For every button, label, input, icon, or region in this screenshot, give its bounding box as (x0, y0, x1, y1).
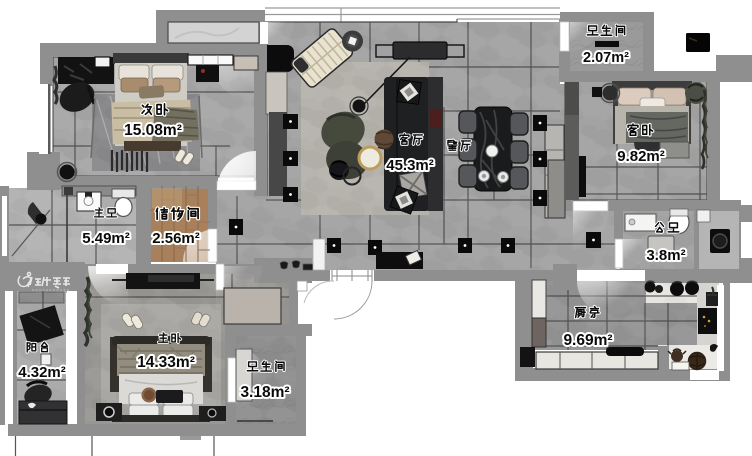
svg-text:9.82m²: 9.82m² (617, 148, 665, 165)
svg-text:14.33m²: 14.33m² (137, 354, 195, 371)
svg-text:4.32m²: 4.32m² (18, 364, 66, 381)
svg-text:15.08m²: 15.08m² (124, 122, 182, 139)
svg-text:9.69m²: 9.69m² (563, 332, 612, 349)
svg-text:45.3m²: 45.3m² (386, 157, 434, 174)
svg-text:2.56m²: 2.56m² (152, 230, 200, 247)
svg-text:5.49m²: 5.49m² (82, 230, 130, 247)
svg-text:3.8m²: 3.8m² (646, 247, 685, 264)
svg-text:2.07m²: 2.07m² (583, 50, 629, 66)
svg-text:3.18m²: 3.18m² (240, 384, 289, 401)
